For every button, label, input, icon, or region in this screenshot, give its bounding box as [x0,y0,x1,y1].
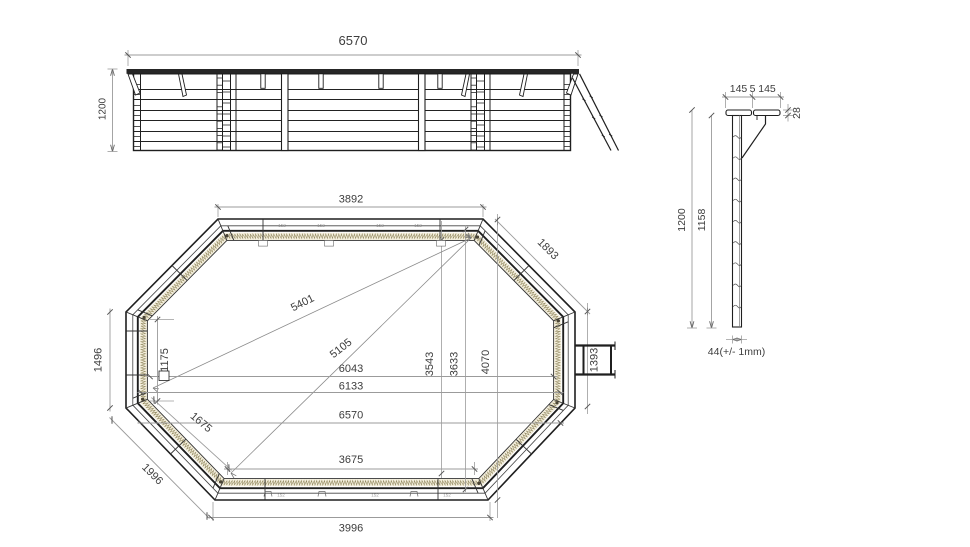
svg-text:152: 152 [371,493,379,498]
svg-text:3892: 3892 [339,194,363,206]
svg-text:5: 5 [750,83,756,95]
svg-text:1200: 1200 [676,208,688,232]
svg-text:152: 152 [376,223,384,228]
svg-text:1158: 1158 [696,209,708,232]
svg-text:28: 28 [791,107,803,119]
svg-text:1496: 1496 [93,348,105,372]
svg-text:6043: 6043 [339,363,363,375]
svg-text:145: 145 [730,83,748,95]
svg-text:44(+/- 1mm): 44(+/- 1mm) [708,346,765,358]
svg-text:6570: 6570 [339,33,368,48]
svg-text:1200: 1200 [98,97,109,120]
svg-text:4070: 4070 [480,350,492,374]
svg-text:1393: 1393 [589,348,601,372]
svg-text:6570: 6570 [339,410,363,422]
svg-text:3543: 3543 [424,352,436,376]
svg-text:152: 152 [317,223,325,228]
svg-text:152: 152 [278,223,286,228]
svg-text:6133: 6133 [339,381,363,393]
svg-text:145: 145 [758,83,776,95]
svg-text:152: 152 [414,223,422,228]
svg-text:3633: 3633 [449,352,461,376]
svg-text:1175: 1175 [159,348,171,372]
svg-text:152: 152 [443,493,451,498]
svg-text:3996: 3996 [339,523,363,535]
svg-text:3675: 3675 [339,454,363,466]
svg-text:152: 152 [277,493,285,498]
